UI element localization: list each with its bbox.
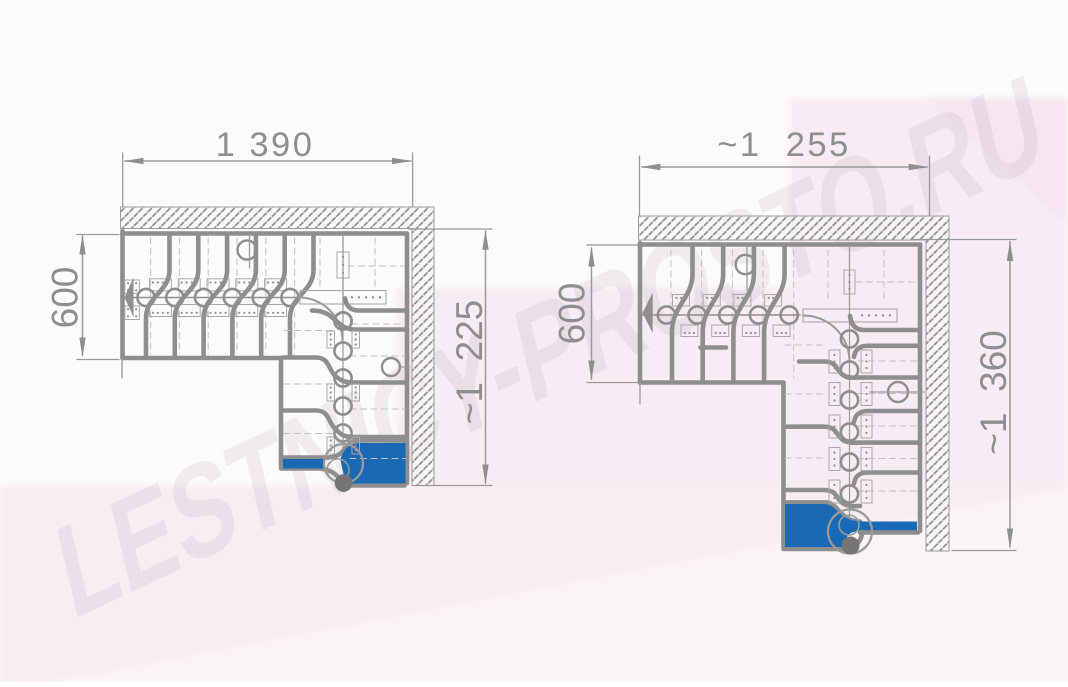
svg-text:600: 600 (552, 283, 593, 345)
svg-text:600: 600 (45, 267, 86, 329)
svg-text:1 390: 1 390 (216, 126, 315, 164)
svg-text:~1 255: ~1 255 (717, 126, 851, 164)
svg-text:~1 225: ~1 225 (449, 300, 490, 424)
svg-text:~1 360: ~1 360 (973, 330, 1014, 454)
